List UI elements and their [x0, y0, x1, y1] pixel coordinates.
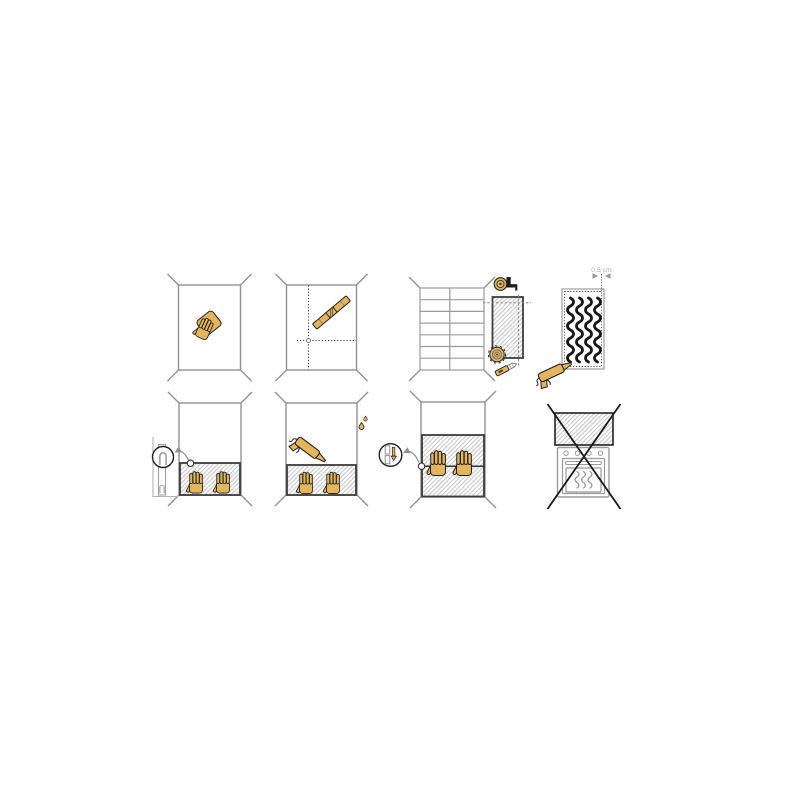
wall-outline [276, 274, 368, 381]
offset-label: 0,5 cm [591, 267, 612, 274]
step-8-not-above-oven [548, 404, 621, 509]
tape-measure-icon [494, 277, 517, 291]
spacer-magnifier [153, 447, 174, 468]
step-4-apply-adhesive: 0,5 cm [532, 267, 612, 391]
joint-magnifier [379, 444, 402, 467]
control-knob [598, 451, 602, 455]
marker-circle [418, 463, 424, 469]
instruction-sheet: 0,5 cm [0, 0, 800, 800]
step-1-clean-wall [168, 274, 252, 381]
step-6-seal-top-edge [275, 392, 368, 506]
step-3-measure-and-cut [409, 277, 531, 381]
pointer-arrow [404, 452, 419, 463]
step-5-position-first-panel [153, 392, 253, 506]
utility-knife-icon [495, 361, 518, 376]
control-knob [564, 451, 568, 455]
caulk-gun-icon [532, 359, 576, 390]
step-7-fit-next-panel [379, 391, 496, 508]
intersection-marker [306, 338, 310, 342]
control-knob [575, 451, 579, 455]
instruction-diagram: 0,5 cm [0, 0, 800, 800]
panel-hatched [555, 413, 613, 445]
sealant-drops-icon [359, 416, 367, 429]
step-2-mark-guidelines [276, 274, 368, 381]
oven-handle [566, 462, 602, 465]
tiled-wall [409, 277, 495, 381]
marker-circle [187, 460, 193, 466]
